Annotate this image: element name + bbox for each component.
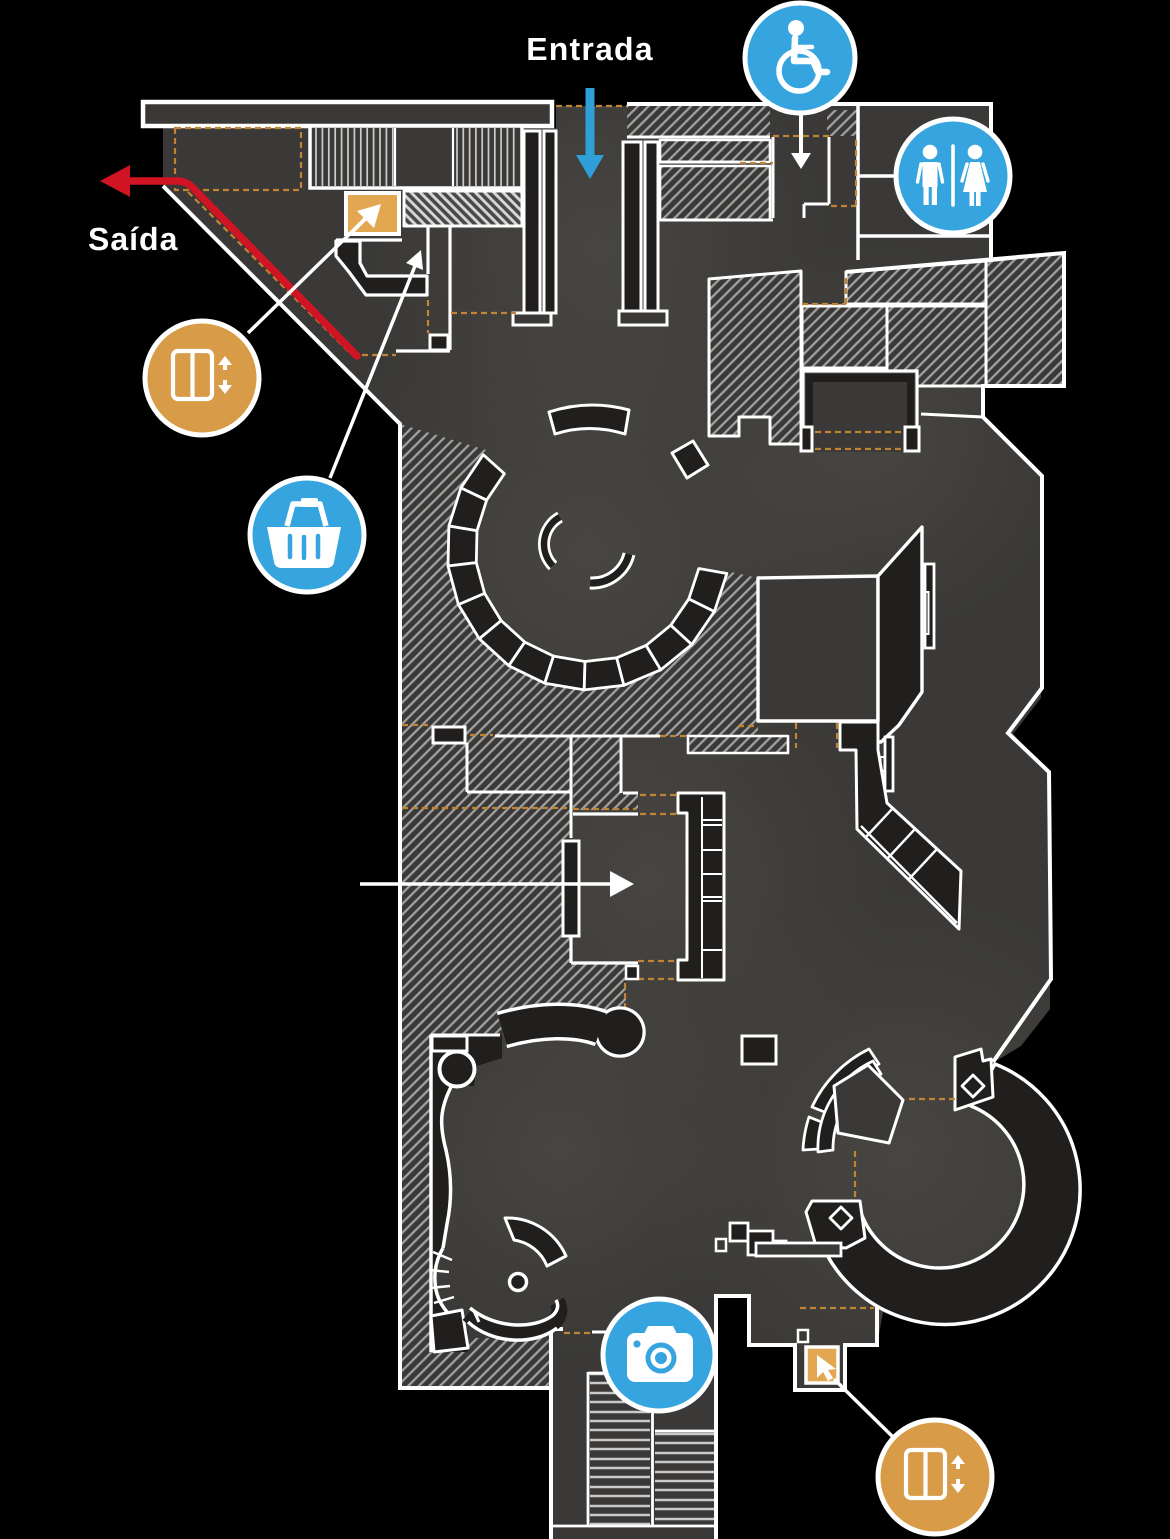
svg-text:Saída: Saída	[88, 221, 178, 257]
svg-text:Entrada: Entrada	[526, 31, 654, 67]
